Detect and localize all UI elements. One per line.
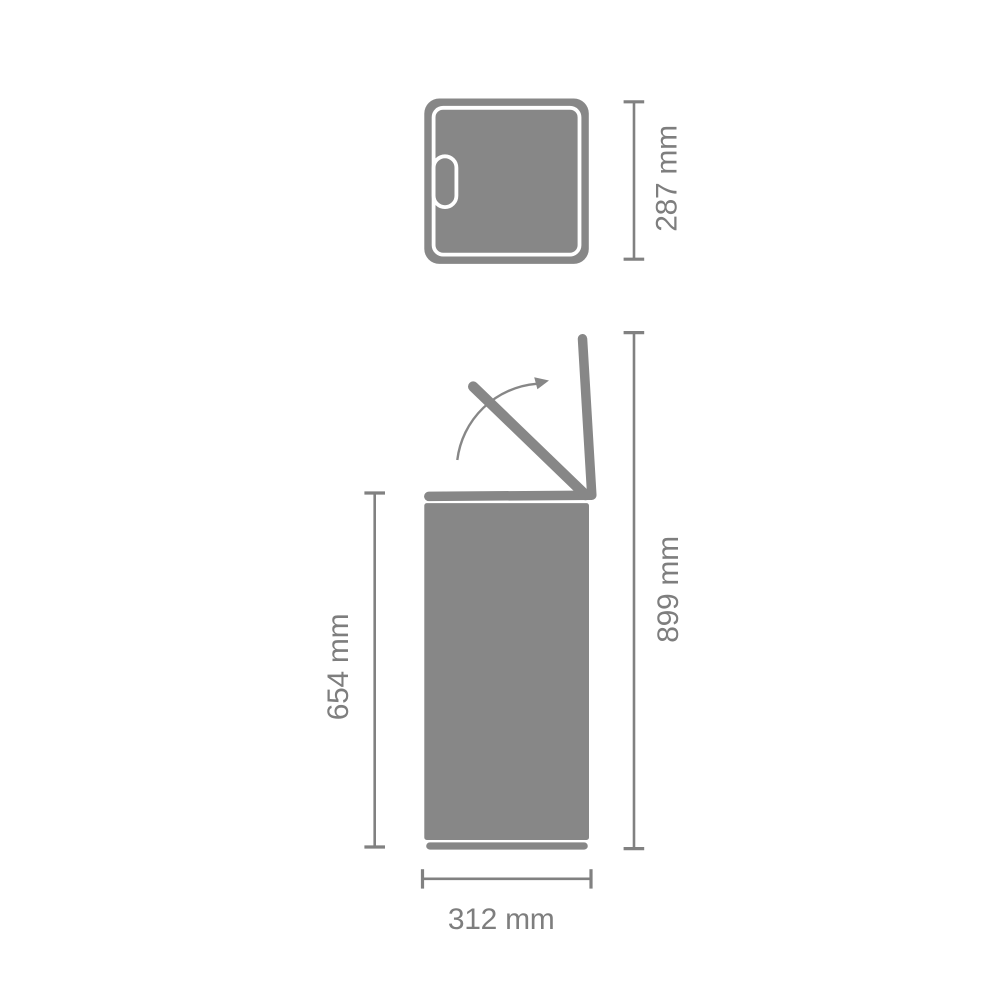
svg-text:654 mm: 654 mm bbox=[322, 614, 355, 721]
svg-text:287 mm: 287 mm bbox=[651, 125, 684, 232]
svg-text:899 mm: 899 mm bbox=[652, 536, 685, 643]
svg-text:312 mm: 312 mm bbox=[448, 903, 555, 936]
